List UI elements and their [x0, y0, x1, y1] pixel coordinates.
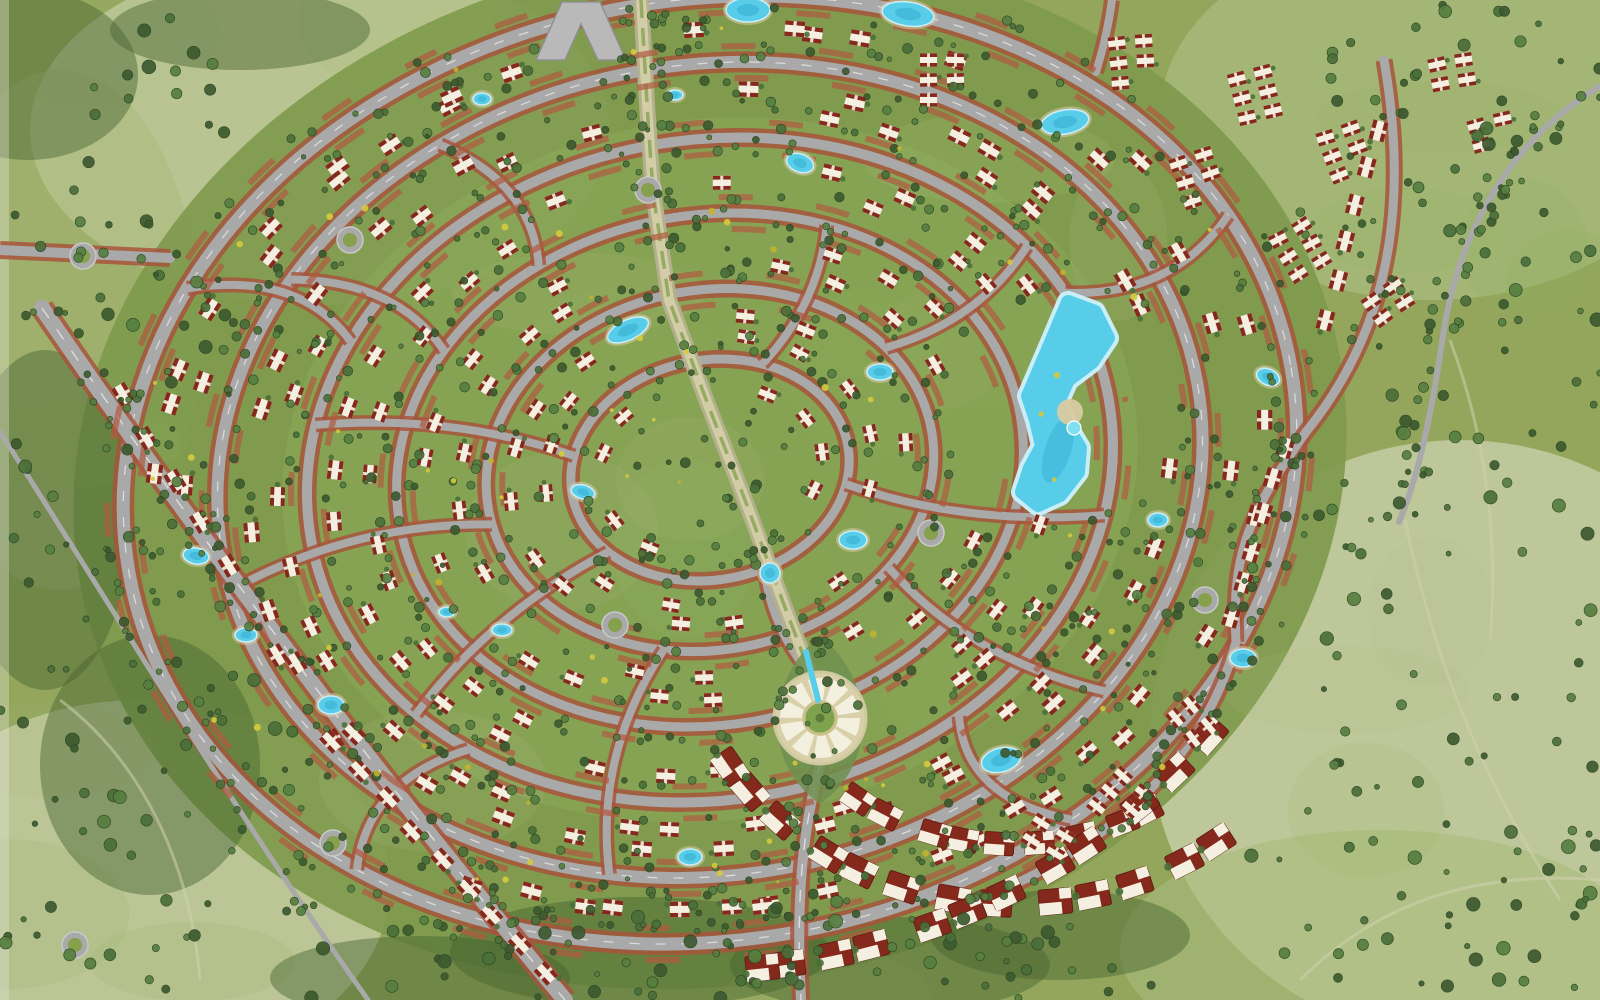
tree-marker [99, 248, 109, 258]
tree-marker [679, 737, 685, 743]
tree-marker [643, 223, 649, 229]
tree-marker [565, 940, 571, 946]
tree-marker [778, 687, 787, 696]
tree-marker [920, 899, 928, 907]
tree-marker [141, 428, 147, 434]
flower-shrub [625, 474, 629, 478]
tree-marker [1381, 589, 1392, 600]
tree-marker [466, 720, 475, 729]
tree-marker [557, 846, 565, 854]
tree-marker [286, 457, 295, 466]
tree-marker [172, 477, 182, 487]
tree-marker [842, 425, 849, 432]
tree-marker [893, 673, 901, 681]
tree-marker [528, 217, 534, 223]
tree-marker [791, 314, 799, 322]
tree-marker [638, 550, 646, 558]
tree-marker [1044, 726, 1049, 731]
flower-shrub [254, 724, 261, 731]
house-marker [1135, 34, 1153, 48]
tree-marker [877, 836, 886, 845]
tree-marker [541, 898, 547, 904]
tree-marker [150, 588, 156, 594]
tree-marker [1481, 753, 1487, 759]
tree-marker [273, 331, 280, 338]
tree-marker [482, 453, 489, 460]
tree-marker [1208, 484, 1213, 489]
tree-marker [1574, 658, 1583, 667]
tree-marker [500, 742, 510, 752]
tree-marker [1484, 491, 1497, 504]
flower-shrub [589, 295, 593, 299]
tree-marker [826, 779, 835, 788]
tree-marker [1487, 203, 1496, 212]
tree-marker [1582, 896, 1588, 902]
tree-marker [35, 241, 45, 251]
tree-marker [720, 206, 727, 213]
tree-marker [327, 311, 334, 318]
tree-marker [701, 435, 708, 442]
tree-marker [982, 52, 990, 60]
tree-marker [911, 582, 918, 589]
tree-marker [368, 808, 378, 818]
tree-marker [1114, 703, 1122, 711]
tree-marker [800, 356, 805, 361]
tree-marker [1388, 276, 1395, 283]
tree-marker [327, 330, 334, 337]
tree-marker [972, 844, 979, 851]
tree-marker [945, 600, 953, 608]
tree-marker [1383, 512, 1392, 521]
tree-marker [229, 318, 237, 326]
flower-shrub [822, 384, 829, 391]
tree-marker [1228, 527, 1233, 532]
tree-marker [482, 952, 495, 965]
tree-marker [1447, 733, 1459, 745]
tree-marker [208, 711, 214, 717]
roundabout [337, 227, 363, 253]
tree-marker [853, 391, 861, 399]
tree-marker [680, 570, 689, 579]
tree-marker [717, 618, 724, 625]
tree-marker [48, 491, 59, 502]
tree-marker [1166, 526, 1173, 533]
tree-marker [325, 339, 332, 346]
tree-marker [1247, 616, 1256, 625]
tree-marker [1166, 725, 1176, 735]
tree-marker [1449, 431, 1461, 443]
tree-marker [1413, 182, 1424, 193]
tree-marker [791, 841, 800, 850]
tree-marker [126, 397, 132, 403]
tree-marker [205, 901, 211, 907]
tree-marker [373, 172, 379, 178]
tree-marker [1301, 532, 1307, 538]
tree-marker [1400, 79, 1407, 86]
tree-marker [481, 559, 486, 564]
tree-marker [808, 889, 818, 899]
tree-marker [713, 950, 720, 957]
tree-marker [1419, 981, 1424, 986]
tree-marker [713, 146, 723, 156]
tree-marker [200, 461, 207, 468]
tree-marker [930, 523, 938, 531]
tree-marker [950, 627, 959, 636]
tree-marker [429, 301, 434, 306]
tree-marker [477, 194, 484, 201]
tree-marker [883, 106, 892, 115]
tree-marker [194, 697, 204, 707]
tree-marker [1509, 284, 1522, 297]
flower-shrub [678, 480, 681, 483]
tree-marker [98, 815, 111, 828]
tree-marker [682, 16, 689, 23]
tree-marker [96, 293, 105, 302]
tree-marker [910, 157, 917, 164]
tree-marker [181, 739, 192, 750]
tree-marker [1194, 558, 1203, 567]
tree-marker [368, 316, 374, 322]
tree-marker [618, 286, 626, 294]
flower-shrub [237, 241, 243, 247]
tree-marker [245, 506, 254, 515]
tree-marker [1352, 786, 1362, 796]
tree-marker [948, 286, 953, 291]
tree-marker [634, 462, 642, 470]
tree-marker [316, 942, 329, 955]
tree-marker [852, 837, 861, 846]
tree-marker [728, 462, 735, 469]
tree-marker [578, 836, 584, 842]
tree-marker [1150, 729, 1157, 736]
tree-marker [278, 200, 284, 206]
tree-marker [1321, 687, 1326, 692]
tree-marker [968, 559, 977, 568]
tree-marker [1341, 479, 1349, 487]
tree-marker [1567, 693, 1576, 702]
tree-marker [173, 250, 181, 258]
tree-marker [661, 637, 670, 646]
tree-marker [684, 935, 697, 948]
tree-marker [1424, 335, 1433, 344]
tree-marker [164, 368, 171, 375]
tree-marker [191, 276, 203, 288]
tree-marker [838, 680, 845, 687]
tree-marker [629, 289, 634, 294]
tree-marker [690, 312, 699, 321]
tree-marker [1408, 851, 1422, 865]
tree-marker [730, 503, 737, 510]
tree-marker [624, 75, 630, 81]
tree-marker [994, 100, 1001, 107]
flower-shrub [1041, 626, 1044, 629]
tree-marker [720, 590, 724, 594]
tree-marker [1404, 179, 1412, 187]
tree-marker [1308, 452, 1314, 458]
tree-marker [807, 367, 816, 376]
tree-marker [1570, 911, 1579, 920]
tree-marker [507, 785, 517, 795]
tree-marker [183, 727, 190, 734]
tree-marker [311, 340, 318, 347]
tree-marker [1347, 543, 1356, 552]
tree-marker [322, 187, 328, 193]
tree-marker [336, 376, 341, 381]
tree-marker [444, 775, 449, 780]
tree-marker [373, 743, 381, 751]
tree-marker [688, 370, 694, 376]
tree-marker [736, 921, 744, 929]
tree-marker [255, 284, 262, 291]
tree-marker [969, 92, 976, 99]
house-marker [1257, 410, 1272, 430]
tree-marker [796, 667, 804, 675]
tree-marker [1053, 131, 1060, 138]
tree-marker [1347, 153, 1354, 160]
tree-marker [431, 704, 436, 709]
tree-marker [1192, 191, 1199, 198]
tree-marker [1412, 23, 1421, 32]
tree-marker [941, 205, 948, 212]
tree-marker [915, 896, 920, 901]
tree-marker [254, 326, 262, 334]
tree-marker [1229, 542, 1236, 549]
tree-marker [1550, 132, 1562, 144]
tree-marker [997, 233, 1004, 240]
tree-marker [1242, 578, 1247, 583]
tree-marker [561, 715, 569, 723]
tree-marker [234, 806, 241, 813]
tree-marker [645, 863, 654, 872]
tree-marker [1086, 609, 1092, 615]
tree-marker [145, 220, 153, 228]
tree-marker [157, 496, 164, 503]
tree-marker [1262, 242, 1272, 252]
tree-marker [549, 404, 558, 413]
flower-shrub [188, 454, 195, 461]
tree-marker [750, 546, 758, 554]
tree-marker [1306, 357, 1313, 364]
tree-marker [364, 480, 369, 485]
tree-marker [1179, 444, 1185, 450]
tree-marker [571, 409, 577, 415]
tree-marker [492, 239, 499, 246]
tree-marker [977, 671, 987, 681]
tree-marker [976, 952, 985, 961]
tree-marker [467, 857, 476, 866]
tree-marker [957, 83, 964, 90]
tree-marker [436, 746, 444, 754]
flower-shrub [610, 408, 614, 412]
flower-shrub [844, 785, 849, 790]
tree-marker [786, 148, 793, 155]
tree-marker [657, 782, 665, 790]
tree-marker [872, 677, 879, 684]
tree-marker [377, 584, 383, 590]
flower-shrub [1054, 372, 1060, 378]
tree-marker [187, 46, 200, 59]
tree-marker [787, 644, 793, 650]
tree-marker [1016, 25, 1024, 33]
flower-shrub [318, 593, 323, 598]
tree-marker [794, 807, 803, 816]
flower-shrub [793, 761, 798, 766]
tree-marker [52, 796, 58, 802]
tree-marker [789, 686, 797, 694]
tree-marker [444, 54, 451, 61]
tree-marker [380, 865, 387, 872]
tree-marker [355, 217, 362, 224]
tree-marker [1266, 561, 1272, 567]
tree-marker [102, 308, 115, 321]
tree-marker [513, 430, 519, 436]
tree-marker [469, 548, 478, 557]
tree-marker [421, 68, 431, 78]
tree-marker [1121, 528, 1130, 537]
tree-marker [449, 887, 455, 893]
tree-marker [1456, 225, 1466, 235]
tree-marker [1490, 461, 1499, 470]
tree-marker [639, 781, 647, 789]
tree-marker [1590, 401, 1597, 408]
tree-marker [127, 851, 136, 860]
tree-marker [831, 896, 843, 908]
tree-marker [657, 121, 667, 131]
tree-marker [675, 49, 682, 56]
tree-marker [479, 865, 484, 870]
tree-marker [420, 916, 429, 925]
tree-marker [716, 462, 722, 468]
tree-marker [1139, 500, 1146, 507]
tree-marker [228, 671, 238, 681]
tree-marker [1003, 643, 1012, 652]
tree-marker [1110, 764, 1115, 769]
tree-marker [1089, 788, 1096, 795]
tree-marker [771, 635, 780, 644]
tree-marker [490, 680, 496, 686]
tree-marker [229, 848, 236, 855]
tree-marker [1004, 573, 1010, 579]
flower-shrub [770, 246, 776, 252]
tree-marker [1118, 825, 1126, 833]
tree-marker [298, 805, 304, 811]
tree-marker [924, 956, 937, 969]
tree-marker [458, 847, 468, 857]
tree-marker [104, 838, 117, 851]
tree-marker [90, 399, 97, 406]
flower-shrub [1068, 533, 1072, 537]
tree-marker [629, 264, 635, 270]
tree-marker [92, 569, 99, 576]
flower-shrub [451, 478, 456, 483]
tree-marker [185, 811, 191, 817]
tree-marker [1122, 641, 1128, 647]
tree-marker [1443, 821, 1450, 828]
tree-marker [892, 903, 898, 909]
tree-marker [703, 367, 711, 375]
tree-marker [185, 527, 193, 535]
tree-marker [550, 915, 557, 922]
tree-marker [242, 763, 249, 770]
tree-marker [294, 850, 304, 860]
tree-marker [539, 927, 552, 940]
tree-marker [622, 959, 630, 967]
tree-marker [535, 366, 542, 373]
tree-marker [247, 492, 255, 500]
tree-marker [1419, 382, 1429, 392]
tree-marker [1118, 212, 1127, 221]
tree-marker [512, 364, 520, 372]
tree-marker [739, 438, 747, 446]
tree-marker [314, 669, 320, 675]
tree-marker [205, 84, 216, 95]
tree-marker [814, 946, 823, 955]
tree-marker [1020, 626, 1026, 632]
tree-marker [139, 539, 145, 545]
tree-marker [1245, 849, 1258, 862]
tree-marker [540, 584, 549, 593]
tree-marker [745, 420, 751, 426]
flower-shrub [1052, 477, 1057, 482]
tree-marker [625, 96, 634, 105]
tree-marker [1165, 620, 1172, 627]
tree-marker [484, 73, 491, 80]
tree-marker [1368, 517, 1373, 522]
tree-marker [1111, 693, 1116, 698]
tree-marker [141, 815, 153, 827]
tree-marker [1267, 373, 1273, 379]
tree-marker [510, 842, 516, 848]
tree-marker [1253, 495, 1261, 503]
tree-marker [736, 976, 747, 987]
tree-marker [1000, 812, 1005, 817]
tree-marker [927, 773, 935, 781]
tree-marker [486, 902, 492, 908]
tree-marker [613, 807, 620, 814]
tree-marker [903, 44, 913, 54]
tree-marker [489, 388, 497, 396]
flower-shrub [870, 630, 877, 637]
tree-marker [643, 237, 651, 245]
tree-marker [425, 134, 430, 139]
tree-marker [600, 78, 607, 85]
tree-marker [156, 669, 162, 675]
tree-marker [1177, 509, 1185, 517]
tree-marker [1100, 652, 1107, 659]
tree-marker [504, 158, 511, 165]
tree-marker [1439, 5, 1452, 18]
tree-marker [645, 734, 652, 741]
tree-marker [215, 601, 226, 612]
tree-marker [206, 564, 216, 574]
tree-marker [313, 722, 320, 729]
tree-marker [819, 330, 828, 339]
tree-marker [700, 25, 706, 31]
tree-marker [415, 614, 422, 621]
tree-marker [901, 394, 909, 402]
tree-marker [703, 121, 713, 131]
tree-marker [913, 462, 922, 471]
tree-marker [825, 236, 834, 245]
tree-marker [673, 701, 681, 709]
tree-marker [931, 514, 938, 521]
tree-marker [414, 602, 424, 612]
tree-marker [813, 815, 819, 821]
masterplan-svg [0, 0, 1600, 1000]
tree-marker [789, 140, 796, 147]
masterplan-canvas [0, 0, 1600, 1000]
tree-marker [1195, 529, 1205, 539]
